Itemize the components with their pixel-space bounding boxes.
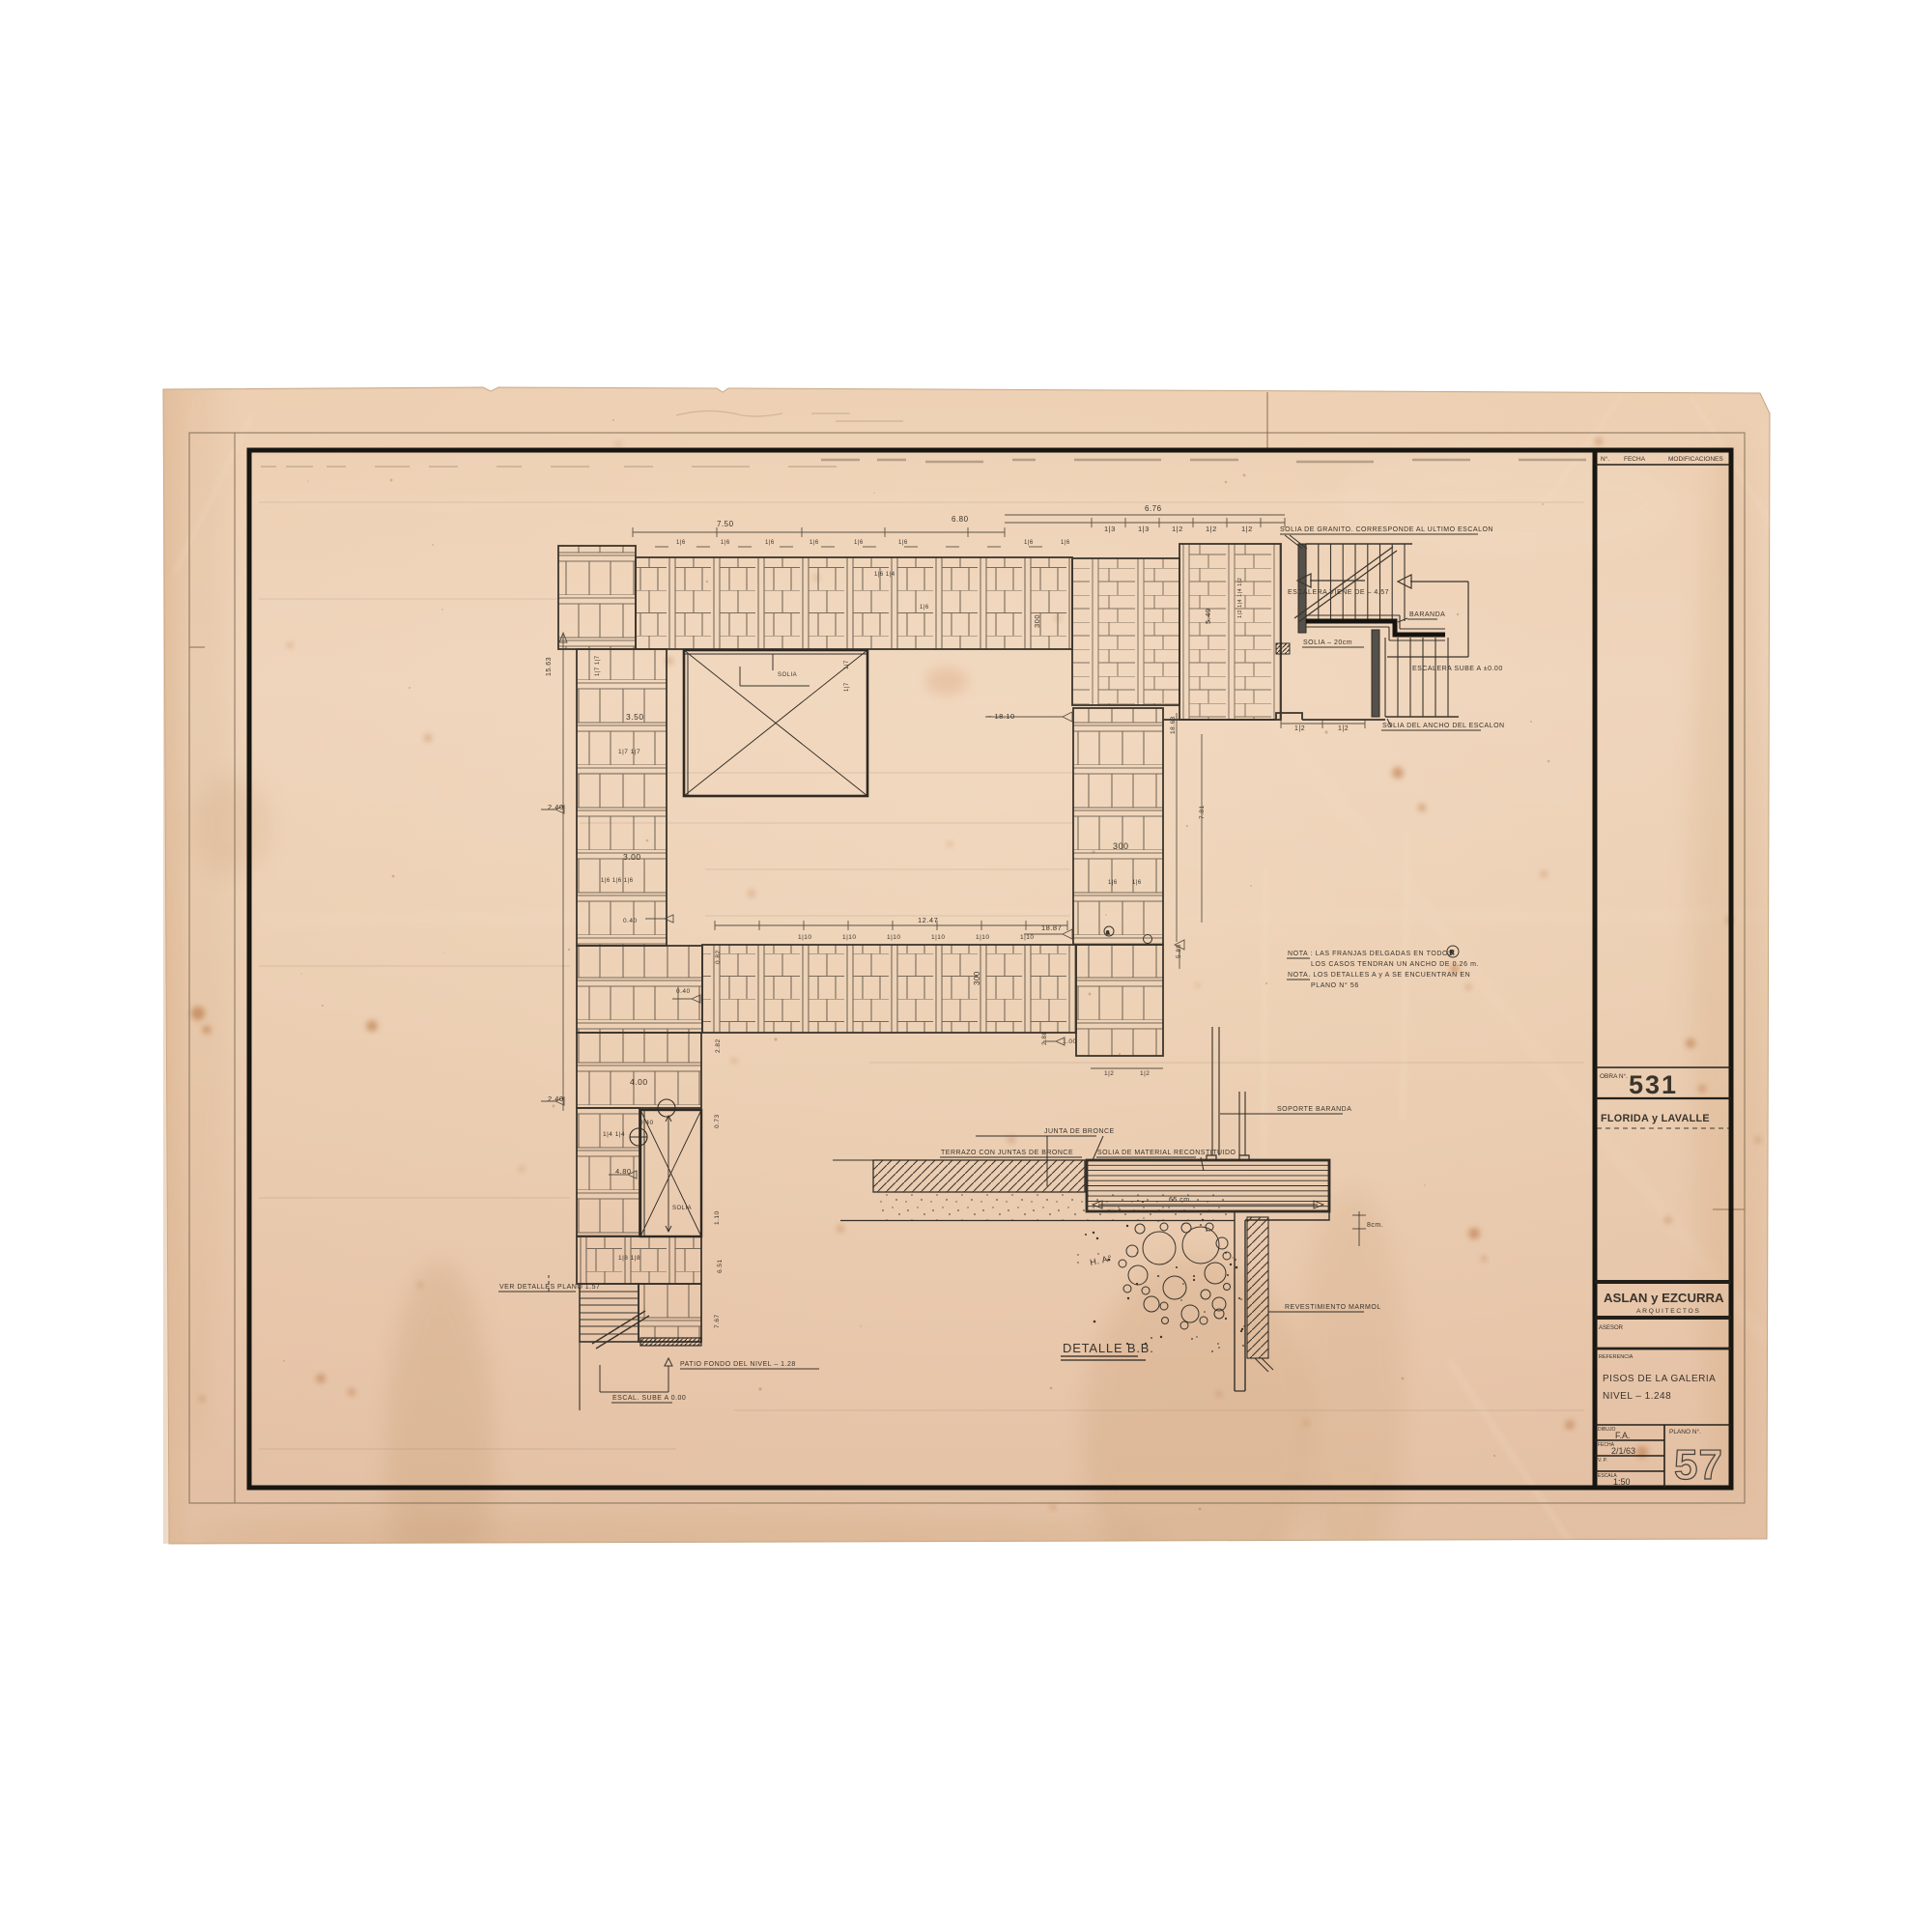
svg-text:LOS CASOS TENDRAN UN ANCHO: LOS CASOS TENDRAN UN ANCHO DE 0.26 m. xyxy=(1311,961,1479,968)
svg-text:1|3: 1|3 xyxy=(1138,525,1150,533)
svg-text:SOLIA: SOLIA xyxy=(778,672,797,678)
svg-text:1|7 1|7: 1|7 1|7 xyxy=(618,749,640,755)
svg-text:300: 300 xyxy=(1113,841,1129,851)
svg-text:57: 57 xyxy=(1674,1441,1723,1489)
svg-text:1|6: 1|6 xyxy=(1132,880,1142,886)
svg-text:ESCALERA VIENE DE – 4.57: ESCALERA VIENE DE – 4.57 xyxy=(1288,589,1389,596)
svg-text:1|6: 1|6 xyxy=(898,540,908,546)
svg-text:1|7 1|7: 1|7 1|7 xyxy=(595,655,601,676)
svg-text:ASESOR: ASESOR xyxy=(1599,1325,1624,1331)
svg-text:1|7: 1|7 xyxy=(844,682,850,692)
svg-text:300: 300 xyxy=(1033,614,1041,628)
svg-text:DIBUJO: DIBUJO xyxy=(1598,1427,1615,1433)
svg-text:1|6 1|4: 1|6 1|4 xyxy=(874,572,895,578)
svg-text:6.51: 6.51 xyxy=(717,1259,724,1273)
svg-text:531: 531 xyxy=(1629,1070,1678,1099)
svg-text:1|2: 1|2 xyxy=(1172,525,1183,533)
svg-text:7.67: 7.67 xyxy=(714,1314,721,1328)
svg-text:ASLAN y EZCURRA: ASLAN y EZCURRA xyxy=(1604,1291,1724,1305)
svg-text:1|2: 1|2 xyxy=(1206,525,1217,533)
svg-text:0.73: 0.73 xyxy=(714,1114,721,1128)
svg-text:NOTA : LAS FRANJAS DELGADAS: NOTA : LAS FRANJAS DELGADAS EN TODOS xyxy=(1288,951,1453,957)
svg-text:FLORIDA y LAVALLE: FLORIDA y LAVALLE xyxy=(1601,1113,1710,1124)
svg-text:NIVEL – 1.248: NIVEL – 1.248 xyxy=(1603,1391,1671,1402)
svg-text:V. P.: V. P. xyxy=(1598,1458,1607,1463)
svg-text:ESCAL. SUBE A 0.00: ESCAL. SUBE A 0.00 xyxy=(612,1395,686,1402)
svg-text:1|6: 1|6 xyxy=(1108,880,1118,886)
svg-text:18.63: 18.63 xyxy=(1170,716,1177,734)
svg-text:PLANO N° 56: PLANO N° 56 xyxy=(1311,981,1359,989)
svg-text:1|10: 1|10 xyxy=(931,934,946,941)
svg-text:12.47: 12.47 xyxy=(918,916,938,924)
svg-text:PATIO FONDO DEL NIVEL – 1.28: PATIO FONDO DEL NIVEL – 1.28 xyxy=(680,1361,796,1368)
svg-text:2.40: 2.40 xyxy=(548,803,564,811)
svg-text:3.00: 3.00 xyxy=(623,852,641,862)
svg-text:1|2: 1|2 xyxy=(1241,525,1253,533)
svg-text:1|6: 1|6 xyxy=(676,540,686,546)
svg-text:OBRA N°.: OBRA N°. xyxy=(1600,1072,1628,1080)
svg-text:4.80: 4.80 xyxy=(615,1167,632,1176)
svg-text:TERRAZO CON JUNTAS DE BRON: TERRAZO CON JUNTAS DE BRONCE xyxy=(941,1150,1073,1156)
svg-text:1|2 1|4 1|4 1|2: 1|2 1|4 1|4 1|2 xyxy=(1237,578,1243,618)
svg-text:5.88: 5.88 xyxy=(1176,944,1182,958)
svg-text:1|2: 1|2 xyxy=(1104,1070,1114,1077)
svg-text:FECHA: FECHA xyxy=(1624,456,1646,463)
svg-text:0.82: 0.82 xyxy=(715,950,722,964)
svg-text:1|10: 1|10 xyxy=(976,934,990,941)
svg-text:SOLIA DE MATERIAL RECONSTIT: SOLIA DE MATERIAL RECONSTITUIDO xyxy=(1097,1150,1236,1156)
svg-text:1.10: 1.10 xyxy=(714,1210,721,1225)
svg-text:DETALLE B.B.: DETALLE B.B. xyxy=(1063,1341,1154,1355)
svg-text:1|6: 1|6 xyxy=(810,540,819,546)
svg-text:1|6: 1|6 xyxy=(920,605,929,611)
svg-text:3.50: 3.50 xyxy=(626,712,644,722)
svg-text:1|10: 1|10 xyxy=(798,934,812,941)
svg-text:4.00: 4.00 xyxy=(630,1077,648,1087)
svg-text:1|2: 1|2 xyxy=(1294,725,1305,732)
svg-text:1|6: 1|6 xyxy=(721,540,730,546)
svg-text:1|2: 1|2 xyxy=(1140,1070,1150,1077)
svg-text:18.87: 18.87 xyxy=(1041,923,1062,932)
svg-text:BARANDA: BARANDA xyxy=(1409,611,1445,618)
svg-text:65 cm.: 65 cm. xyxy=(1169,1197,1192,1204)
svg-text:2.40: 2.40 xyxy=(548,1094,564,1103)
svg-text:JUNTA DE BRONCE: JUNTA DE BRONCE xyxy=(1044,1128,1115,1135)
svg-text:1|6: 1|6 xyxy=(765,540,775,546)
svg-text:2/1/63: 2/1/63 xyxy=(1611,1446,1635,1456)
svg-text:0.40: 0.40 xyxy=(676,988,691,995)
svg-text:− 18.10: − 18.10 xyxy=(987,712,1015,721)
svg-text:300: 300 xyxy=(973,971,981,985)
svg-text:0.40: 0.40 xyxy=(639,1120,654,1126)
svg-text:NOTA. LOS DETALLES A y A: NOTA. LOS DETALLES A y A SE ENCUENTRAN E… xyxy=(1288,972,1470,979)
svg-text:1|10: 1|10 xyxy=(1020,934,1035,941)
svg-text:1:50: 1:50 xyxy=(1613,1477,1631,1487)
svg-text:SOLIA DE GRANITO. CORRESPONDE: SOLIA DE GRANITO. CORRESPONDE AL ULTIMO … xyxy=(1280,526,1493,533)
svg-text:F.A.: F.A. xyxy=(1615,1431,1631,1440)
svg-text:2.88: 2.88 xyxy=(1041,1031,1048,1045)
svg-text:1|2: 1|2 xyxy=(1338,725,1349,732)
svg-text:7.50: 7.50 xyxy=(717,520,734,528)
svg-text:PLANO N°.: PLANO N°. xyxy=(1669,1428,1701,1435)
svg-text:1|6: 1|6 xyxy=(854,540,864,546)
svg-text:6.76: 6.76 xyxy=(1145,504,1162,513)
svg-text:1|6 1|6 1|6: 1|6 1|6 1|6 xyxy=(601,878,634,884)
svg-text:ESCALERA SUBE A ±0.00: ESCALERA SUBE A ±0.00 xyxy=(1412,666,1503,672)
svg-text:0.40: 0.40 xyxy=(623,918,638,924)
svg-text:8cm.: 8cm. xyxy=(1367,1222,1383,1229)
svg-text:5.49: 5.49 xyxy=(1204,608,1212,624)
svg-text:2.82: 2.82 xyxy=(715,1038,722,1053)
svg-text:1|6: 1|6 xyxy=(1024,540,1034,546)
svg-text:ARQUITECTOS: ARQUITECTOS xyxy=(1636,1308,1701,1315)
svg-text:1|10: 1|10 xyxy=(887,934,901,941)
svg-text:MODIFICACIONES: MODIFICACIONES xyxy=(1668,456,1723,463)
svg-text:7.81: 7.81 xyxy=(1199,805,1206,819)
svg-text:VER DETALLES PLANO 1.57: VER DETALLES PLANO 1.57 xyxy=(499,1284,600,1291)
svg-text:1|7: 1|7 xyxy=(844,660,850,669)
svg-text:1|10: 1|10 xyxy=(842,934,857,941)
svg-text:1|3: 1|3 xyxy=(1104,525,1116,533)
svg-text:REVESTIMIENTO MARMOL: REVESTIMIENTO MARMOL xyxy=(1285,1304,1381,1311)
svg-text:15.63: 15.63 xyxy=(546,657,553,676)
svg-text:SOLIA DEL ANCHO DEL ESCALON: SOLIA DEL ANCHO DEL ESCALON xyxy=(1382,723,1505,729)
svg-text:SOLIA – 20cm: SOLIA – 20cm xyxy=(1303,639,1352,646)
svg-text:SOLIA: SOLIA xyxy=(672,1206,692,1211)
svg-text:6.80: 6.80 xyxy=(952,515,969,524)
svg-text:1.00: 1.00 xyxy=(1063,1038,1077,1045)
svg-text:1|6: 1|6 xyxy=(1061,540,1070,546)
svg-text:PISOS DE LA GALERIA: PISOS DE LA GALERIA xyxy=(1603,1374,1716,1384)
svg-text:SOPORTE BARANDA: SOPORTE BARANDA xyxy=(1277,1106,1351,1113)
svg-text:N°.: N°. xyxy=(1601,455,1609,463)
svg-text:1|4 1|4: 1|4 1|4 xyxy=(603,1131,625,1138)
svg-text:REFERENCIA: REFERENCIA xyxy=(1599,1354,1634,1360)
svg-text:1|8 1|8: 1|8 1|8 xyxy=(618,1255,640,1262)
